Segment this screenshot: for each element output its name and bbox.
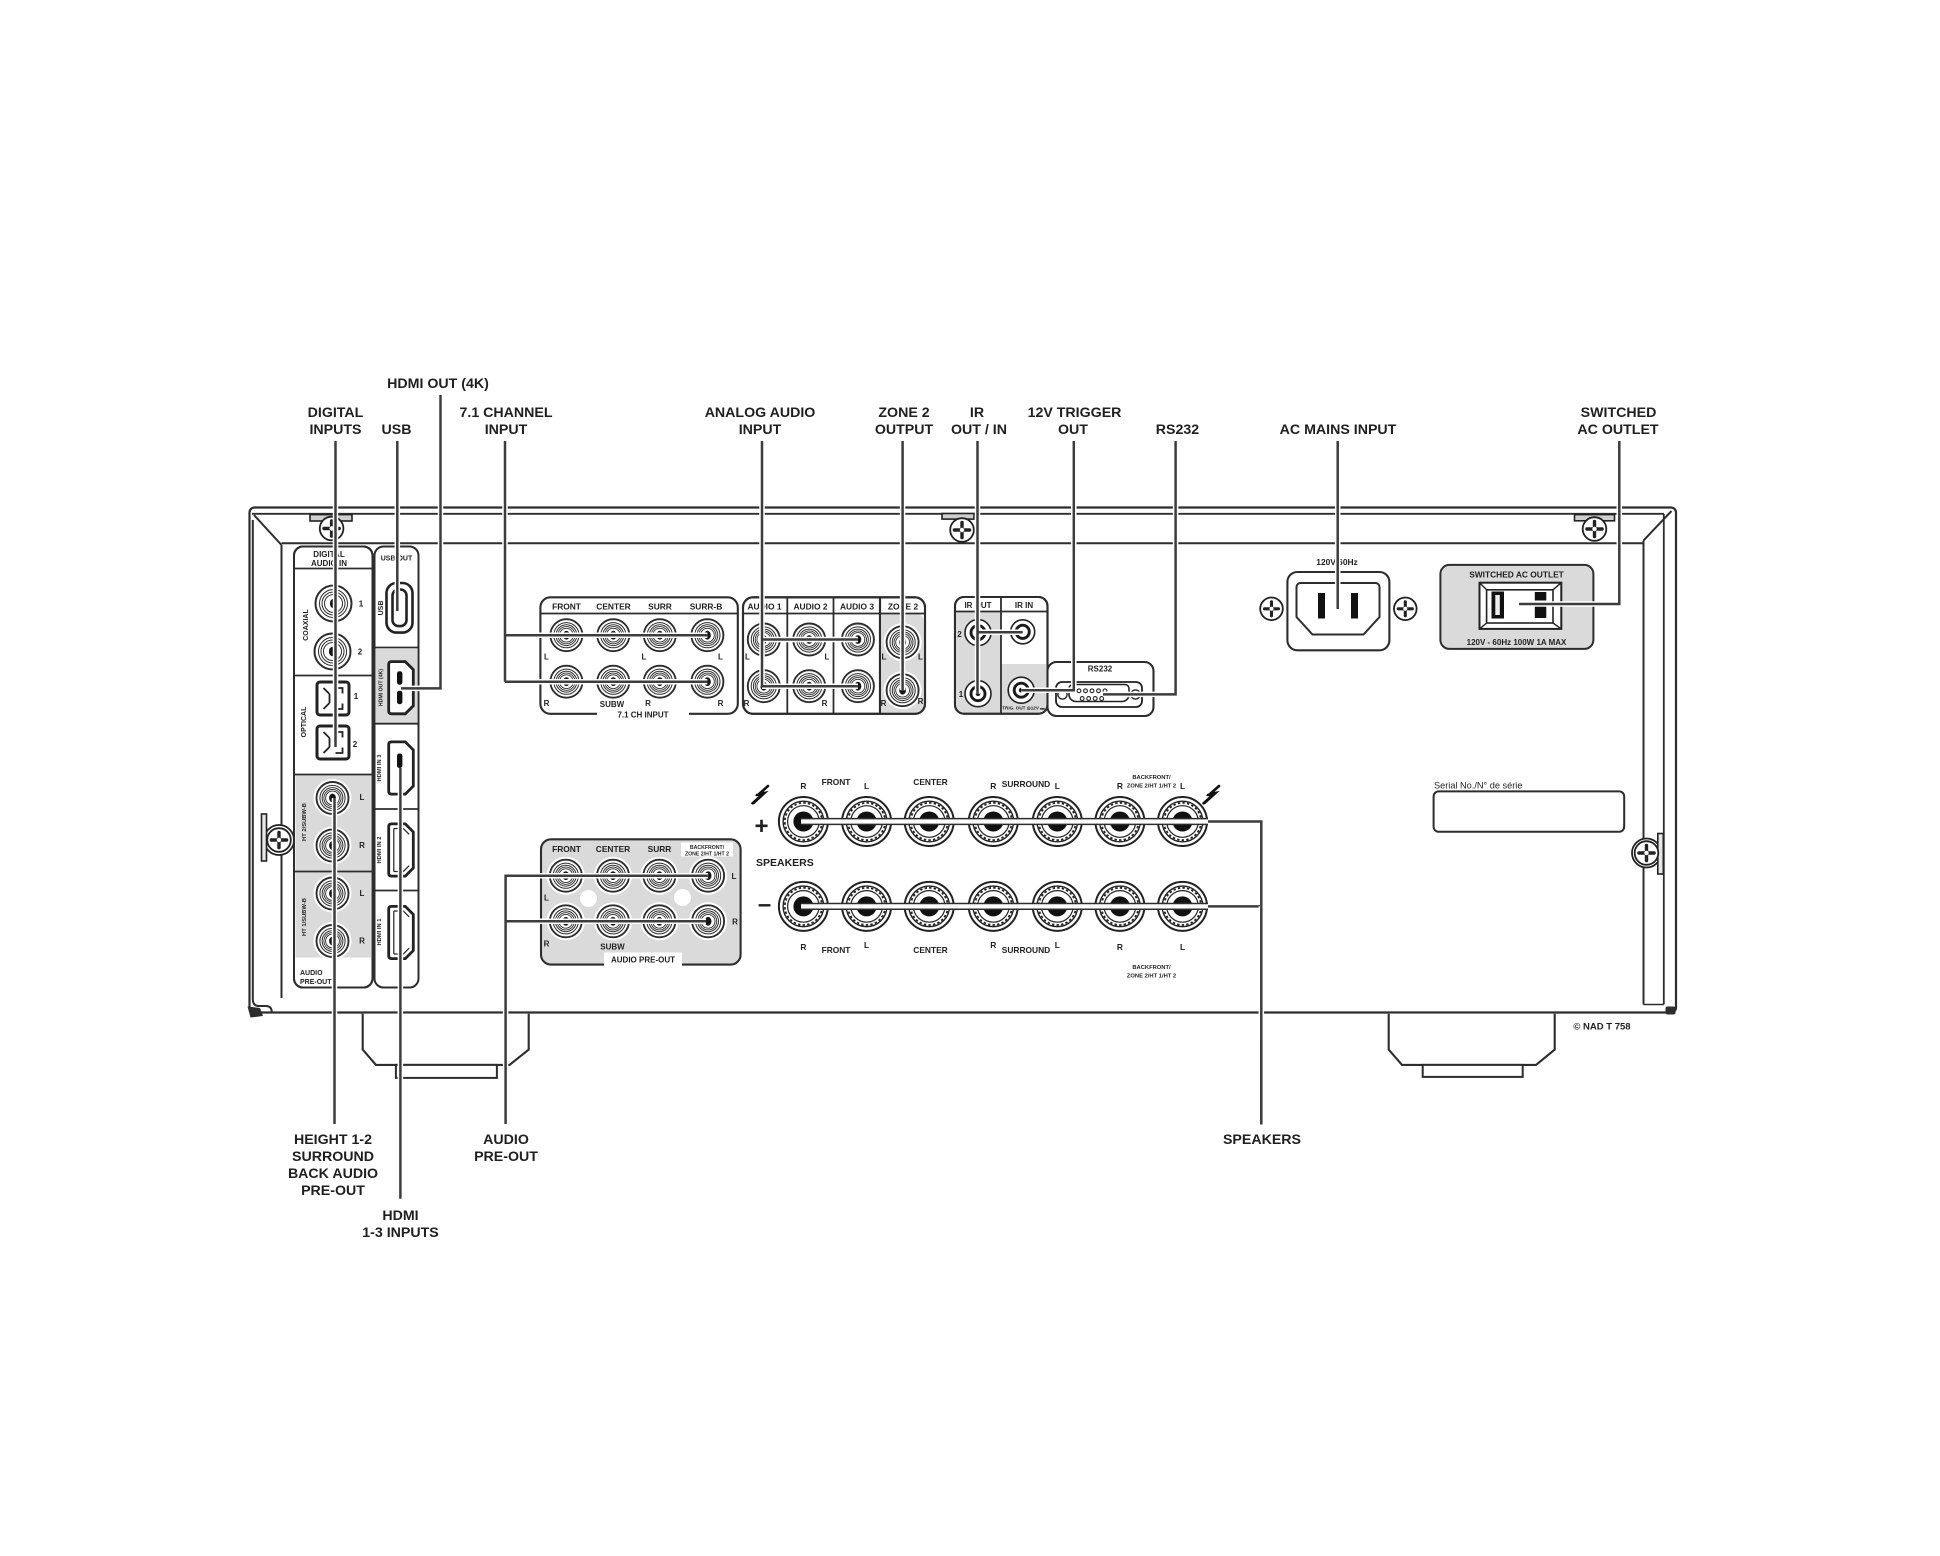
svg-text:SURROUND: SURROUND: [1002, 945, 1050, 955]
svg-text:HDMI: HDMI: [382, 1208, 418, 1224]
svg-text:ZONE 2: ZONE 2: [878, 405, 929, 421]
svg-text:L: L: [1180, 781, 1185, 791]
svg-text:L: L: [732, 872, 737, 881]
svg-text:DIGITAL: DIGITAL: [313, 550, 345, 559]
svg-text:L: L: [864, 781, 869, 791]
svg-text:HDMI IN 2: HDMI IN 2: [377, 836, 383, 863]
svg-text:7.1 CHANNEL: 7.1 CHANNEL: [459, 405, 552, 421]
svg-text:OUT: OUT: [1058, 422, 1088, 438]
svg-text:R: R: [1117, 942, 1123, 952]
svg-text:PRE-OUT: PRE-OUT: [300, 979, 332, 986]
svg-text:HDMI OUT (4K): HDMI OUT (4K): [379, 669, 385, 706]
svg-text:PRE-OUT: PRE-OUT: [474, 1149, 538, 1165]
svg-text:CENTER: CENTER: [913, 945, 947, 955]
svg-text:R: R: [822, 699, 828, 708]
svg-text:1: 1: [959, 690, 964, 699]
svg-text:HT 2/SUBW-B: HT 2/SUBW-B: [302, 803, 308, 841]
svg-text:1: 1: [354, 692, 359, 701]
svg-text:120V - 60Hz 100W 1A MAX: 120V - 60Hz 100W 1A MAX: [1467, 638, 1567, 647]
svg-text:SWITCHED: SWITCHED: [1581, 405, 1657, 421]
svg-text:7.1 CH INPUT: 7.1 CH INPUT: [617, 711, 668, 720]
svg-text:SURROUND: SURROUND: [292, 1149, 374, 1165]
svg-text:R: R: [645, 699, 651, 708]
svg-text:R: R: [918, 697, 924, 706]
svg-text:Serial No./N° de série: Serial No./N° de série: [1434, 781, 1522, 791]
svg-text:HDMI IN 3: HDMI IN 3: [377, 754, 383, 782]
svg-text:USB: USB: [382, 422, 412, 438]
svg-text:RS232: RS232: [1088, 665, 1113, 674]
svg-text:L: L: [918, 653, 923, 662]
svg-text:L: L: [544, 653, 549, 662]
svg-text:12V TRIGGER: 12V TRIGGER: [1028, 405, 1122, 421]
svg-text:L: L: [745, 653, 750, 662]
svg-text:L: L: [642, 653, 647, 662]
svg-text:AC MAINS INPUT: AC MAINS INPUT: [1280, 422, 1397, 438]
svg-text:ZONE 2/HT 1/HT 2: ZONE 2/HT 1/HT 2: [1127, 784, 1176, 790]
svg-text:AUDIO: AUDIO: [483, 1132, 529, 1148]
svg-text:R: R: [718, 699, 724, 708]
svg-text:SURR: SURR: [648, 602, 672, 612]
svg-text:SPEAKERS: SPEAKERS: [756, 857, 814, 869]
svg-text:FRONT: FRONT: [822, 777, 852, 787]
svg-text:HDMI IN 1: HDMI IN 1: [377, 918, 383, 946]
svg-text:TRIG. OUT ◎12V ▬: TRIG. OUT ◎12V ▬: [1002, 706, 1045, 711]
svg-text:AUDIO 2: AUDIO 2: [794, 602, 828, 612]
svg-text:SURROUND: SURROUND: [1002, 779, 1050, 789]
svg-text:OPTICAL: OPTICAL: [301, 706, 308, 737]
svg-text:R: R: [881, 699, 887, 708]
svg-text:R: R: [1117, 781, 1123, 791]
svg-text:CENTER: CENTER: [596, 844, 630, 854]
svg-text:IR: IR: [970, 405, 984, 421]
svg-text:1: 1: [359, 600, 364, 609]
svg-text:ANALOG AUDIO: ANALOG AUDIO: [705, 405, 816, 421]
svg-text:R: R: [544, 699, 550, 708]
svg-text:R: R: [744, 699, 750, 708]
svg-text:L: L: [718, 653, 723, 662]
svg-text:SURR: SURR: [648, 844, 672, 854]
svg-text:HT 1/SUBW-B: HT 1/SUBW-B: [302, 898, 308, 936]
svg-text:CENTER: CENTER: [913, 777, 947, 787]
svg-text:+: +: [754, 813, 768, 840]
svg-text:1-3 INPUTS: 1-3 INPUTS: [362, 1225, 438, 1241]
svg-text:–: –: [758, 891, 771, 918]
svg-text:L: L: [544, 894, 549, 903]
svg-text:L: L: [360, 793, 365, 802]
svg-text:FRONT: FRONT: [552, 844, 582, 854]
svg-text:L: L: [1180, 942, 1185, 952]
svg-text:R: R: [800, 781, 806, 791]
svg-text:R: R: [359, 937, 365, 946]
svg-text:AUDIO 3: AUDIO 3: [840, 602, 874, 612]
svg-text:ZONE 2/HT 1/HT 2: ZONE 2/HT 1/HT 2: [685, 851, 729, 857]
svg-text:INPUT: INPUT: [739, 422, 782, 438]
svg-text:L: L: [825, 653, 830, 662]
svg-text:PRE-OUT: PRE-OUT: [301, 1183, 365, 1199]
svg-text:R: R: [544, 940, 550, 949]
svg-text:AUDIO: AUDIO: [300, 970, 323, 977]
svg-text:L: L: [864, 940, 869, 950]
svg-text:BACKFRONT/: BACKFRONT/: [690, 845, 725, 851]
svg-text:BACK AUDIO: BACK AUDIO: [288, 1166, 378, 1182]
svg-text:R: R: [732, 918, 738, 927]
svg-text:HDMI OUT (4K): HDMI OUT (4K): [387, 376, 489, 392]
svg-text:2: 2: [358, 648, 363, 657]
svg-text:HEIGHT 1-2: HEIGHT 1-2: [294, 1132, 372, 1148]
svg-text:AC OUTLET: AC OUTLET: [1577, 422, 1659, 438]
svg-text:R: R: [800, 942, 806, 952]
svg-text:SUBW: SUBW: [600, 943, 625, 952]
svg-text:AUDIO IN: AUDIO IN: [311, 559, 347, 568]
svg-text:FRONT: FRONT: [822, 945, 852, 955]
svg-text:BACKFRONT/: BACKFRONT/: [1132, 965, 1171, 971]
svg-text:INPUTS: INPUTS: [309, 422, 361, 438]
svg-text:L: L: [360, 889, 365, 898]
svg-text:2: 2: [353, 740, 358, 749]
svg-text:AUDIO PRE-OUT: AUDIO PRE-OUT: [611, 956, 675, 965]
svg-text:2: 2: [957, 630, 962, 639]
svg-text:L: L: [1055, 940, 1060, 950]
svg-text:IR IN: IR IN: [1015, 601, 1033, 610]
svg-text:FRONT: FRONT: [552, 602, 582, 612]
svg-text:SWITCHED AC OUTLET: SWITCHED AC OUTLET: [1469, 570, 1564, 580]
svg-text:R: R: [990, 940, 996, 950]
svg-text:SURR-B: SURR-B: [690, 602, 723, 612]
svg-text:SPEAKERS: SPEAKERS: [1223, 1132, 1301, 1148]
svg-text:© NAD T 758: © NAD T 758: [1573, 1022, 1630, 1033]
svg-text:CENTER: CENTER: [596, 602, 630, 612]
svg-text:BACKFRONT/: BACKFRONT/: [1132, 775, 1171, 781]
svg-text:ZONE 2/HT 1/HT 2: ZONE 2/HT 1/HT 2: [1127, 974, 1176, 980]
svg-text:OUT / IN: OUT / IN: [951, 422, 1007, 438]
svg-text:USB: USB: [378, 601, 385, 616]
svg-text:INPUT: INPUT: [485, 422, 528, 438]
svg-text:OUTPUT: OUTPUT: [875, 422, 934, 438]
svg-text:COAXIAL: COAXIAL: [303, 609, 310, 641]
svg-text:DIGITAL: DIGITAL: [308, 405, 364, 421]
svg-text:L: L: [1055, 781, 1060, 791]
svg-text:L: L: [882, 653, 887, 662]
svg-text:R: R: [990, 781, 996, 791]
svg-text:RS232: RS232: [1156, 422, 1199, 438]
svg-text:R: R: [359, 841, 365, 850]
